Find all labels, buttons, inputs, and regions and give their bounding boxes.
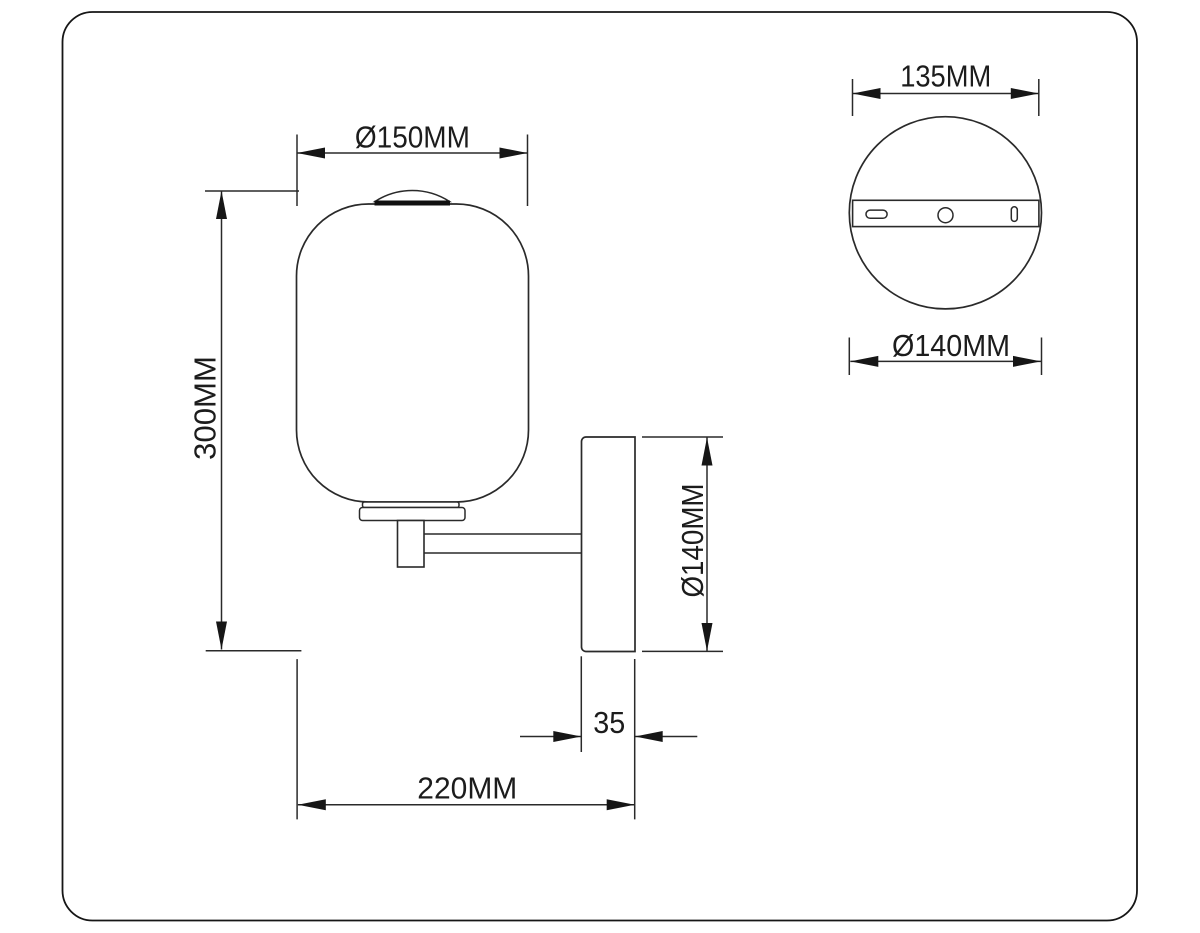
svg-text:Ø140MM: Ø140MM	[892, 328, 1010, 363]
svg-text:Ø140MM: Ø140MM	[675, 484, 710, 598]
svg-text:220MM: 220MM	[417, 771, 517, 806]
svg-text:135MM: 135MM	[900, 59, 991, 94]
svg-text:300MM: 300MM	[188, 356, 223, 460]
svg-text:Ø150MM: Ø150MM	[355, 120, 470, 155]
svg-text:35: 35	[593, 705, 625, 740]
